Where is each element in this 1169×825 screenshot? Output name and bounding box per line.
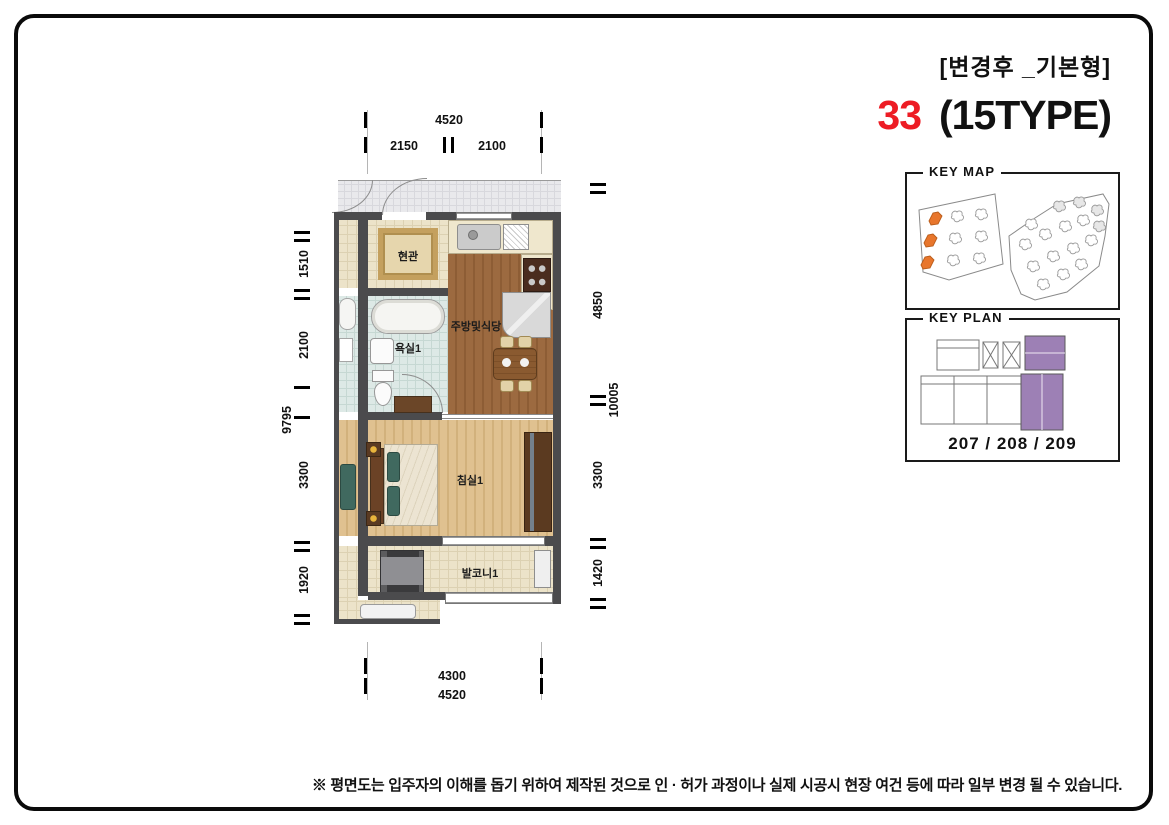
stove (523, 258, 551, 292)
unit-type-title: 33(15TYPE) (877, 92, 1111, 139)
room-label-entrance: 현관 (368, 248, 448, 264)
key-plan-box: KEY PLAN 207 / 208 (905, 318, 1120, 462)
bedroom-window (442, 536, 545, 546)
dim-bottom-seg1: 4300 (402, 668, 502, 684)
balcony-cabinet (534, 550, 551, 588)
party-wall (358, 212, 368, 596)
dim-tick (294, 614, 310, 617)
laundry-basin (360, 604, 416, 619)
floor-plan: 현관 주방및식당 욕실1 (330, 178, 566, 628)
dim-tick (590, 606, 606, 609)
dining-chair (500, 380, 514, 392)
dim-tick (294, 541, 310, 544)
wall (545, 536, 561, 546)
kitchen-sink (457, 224, 501, 250)
dim-tick (294, 297, 310, 300)
dim-tick (590, 403, 606, 406)
dim-tick (294, 416, 310, 419)
kitchen-window (456, 212, 512, 220)
table-setting (520, 358, 529, 367)
dim-tick (540, 678, 543, 694)
key-plan-drawing (907, 328, 1114, 436)
dim-tick (364, 658, 367, 674)
dim-tick (590, 191, 606, 194)
wall (368, 592, 445, 600)
toilet-tank (372, 370, 394, 382)
extension-line (367, 642, 368, 700)
floor-plan-sheet: [변경후 _기본형] 33(15TYPE) KEY MAP (0, 0, 1169, 825)
balcony-window (445, 592, 553, 604)
dim-right-seg2: 3300 (591, 440, 605, 510)
key-plan-unit-numbers: 207 / 208 / 209 (907, 434, 1118, 454)
wall (426, 212, 456, 220)
dim-tick (364, 678, 367, 694)
bed-post (366, 511, 381, 526)
dish-unit (503, 224, 529, 250)
dim-right-seg1: 4850 (591, 270, 605, 340)
room-label-balcony: 발코니1 (445, 565, 515, 581)
dining-chair (518, 336, 532, 348)
wall (368, 412, 442, 420)
adjacent-tub-fragment (339, 298, 356, 330)
sink-drain (468, 230, 478, 240)
wardrobe (524, 432, 552, 532)
dim-tick (294, 622, 310, 625)
dim-tick (590, 395, 606, 398)
dining-table (493, 348, 537, 380)
dim-right-overall: 10005 (607, 365, 621, 435)
dining-chair (518, 380, 532, 392)
dim-tick (540, 112, 543, 128)
adjacent-unit-fragment (339, 220, 358, 288)
wall (368, 536, 442, 546)
revision-label: [변경후 _기본형] (877, 48, 1111, 82)
dim-tick (590, 598, 606, 601)
key-map-highlighted-buildings (921, 212, 942, 269)
washing-machine (380, 550, 424, 594)
dim-left-seg2: 2100 (297, 310, 311, 380)
dim-left-seg3: 3300 (297, 440, 311, 510)
table-setting (502, 358, 511, 367)
key-map-drawing (907, 174, 1114, 304)
dim-tick (364, 112, 367, 128)
bathtub (371, 299, 445, 334)
room-label-bedroom: 침실1 (430, 472, 510, 488)
cabinet (394, 396, 432, 413)
dim-tick (294, 386, 310, 389)
adjacent-bed-fragment (340, 464, 356, 510)
key-plan-highlighted-unit (1021, 336, 1065, 430)
unit-number: 33 (877, 92, 921, 138)
title-block: [변경후 _기본형] 33(15TYPE) (877, 48, 1111, 139)
dim-left-seg4: 1920 (297, 545, 311, 615)
adjacent-sink-fragment (339, 338, 353, 362)
key-plan-title: KEY PLAN (923, 310, 1009, 325)
room-label-kitchen-dining: 주방및식당 (438, 318, 514, 334)
bed-pillow (387, 486, 400, 516)
disclaimer-note: ※ 평면도는 입주자의 이해를 돕기 위하여 제작된 것으로 인 · 허가 과정… (297, 774, 1137, 795)
bed-pillow (387, 452, 400, 482)
dim-tick (540, 658, 543, 674)
sliding-door-track (442, 414, 553, 419)
type-label: (15TYPE) (939, 92, 1111, 138)
dim-left-overall: 9795 (280, 385, 294, 455)
dim-top-seg2: 2100 (442, 138, 542, 154)
dim-tick (590, 183, 606, 186)
wall (368, 288, 448, 296)
dim-bottom-overall: 4520 (402, 687, 502, 703)
key-map-title: KEY MAP (923, 164, 1001, 179)
dim-top-seg1: 2150 (354, 138, 454, 154)
bed-post (366, 442, 381, 457)
dim-tick (294, 289, 310, 292)
room-label-bathroom: 욕실1 (378, 340, 438, 356)
dim-top-overall: 4520 (399, 112, 499, 128)
key-map-box: KEY MAP (905, 172, 1120, 310)
dining-chair (500, 336, 514, 348)
